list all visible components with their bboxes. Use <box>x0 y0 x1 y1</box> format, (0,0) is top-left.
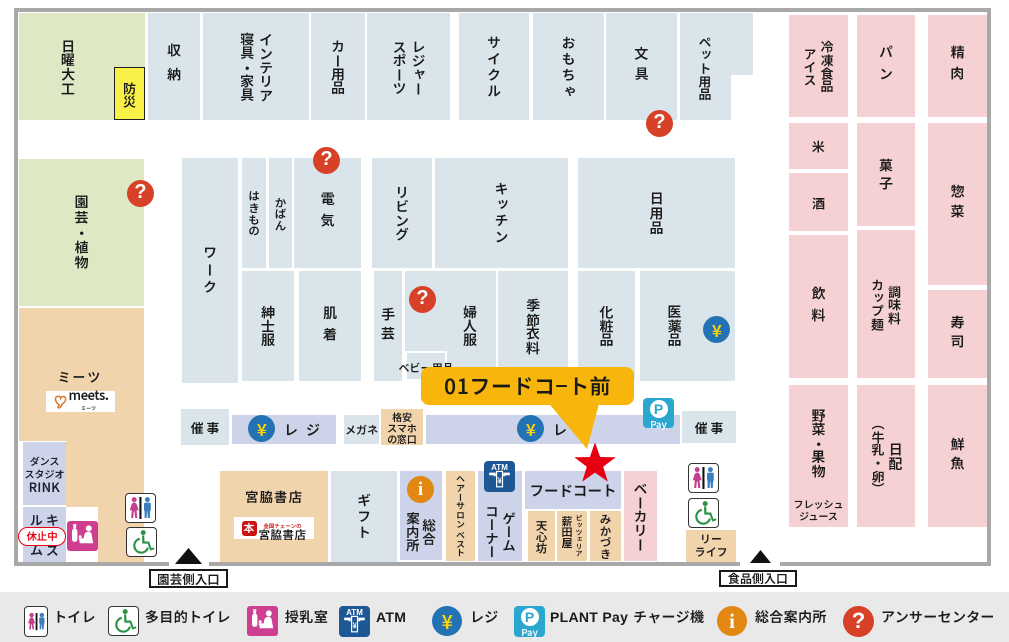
svg-text:ATM: ATM <box>346 608 363 617</box>
svg-text:¥: ¥ <box>497 476 502 487</box>
svg-text:ATM: ATM <box>491 463 508 472</box>
svg-text:¥: ¥ <box>352 621 357 632</box>
